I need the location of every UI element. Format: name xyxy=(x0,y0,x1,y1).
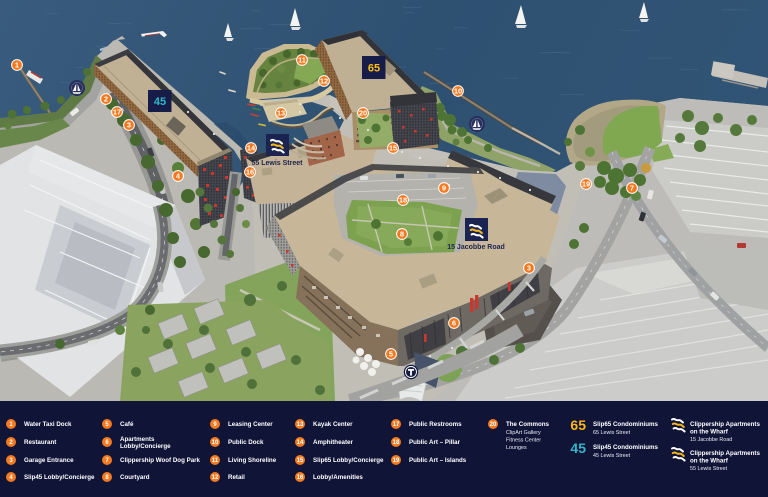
svg-text:15: 15 xyxy=(297,458,304,464)
svg-text:on the Wharf: on the Wharf xyxy=(690,458,729,465)
svg-text:65 Lewis Street: 65 Lewis Street xyxy=(593,430,631,436)
svg-text:Fitness Center: Fitness Center xyxy=(506,438,541,444)
svg-text:15: 15 xyxy=(389,144,397,153)
svg-text:3: 3 xyxy=(127,121,131,130)
svg-text:16: 16 xyxy=(297,475,304,481)
svg-text:15 Jacobbe Road: 15 Jacobbe Road xyxy=(690,437,732,443)
svg-text:Public Art – Islands: Public Art – Islands xyxy=(409,457,467,464)
svg-text:Clippership Apartments: Clippership Apartments xyxy=(690,421,760,428)
svg-text:6: 6 xyxy=(452,319,456,328)
svg-text:19: 19 xyxy=(582,180,590,189)
svg-text:The Commons: The Commons xyxy=(506,421,550,428)
svg-text:55 Lewis Street: 55 Lewis Street xyxy=(252,160,304,167)
svg-text:14: 14 xyxy=(297,440,304,446)
svg-text:10: 10 xyxy=(212,440,219,446)
svg-text:Water Taxi Dock: Water Taxi Dock xyxy=(24,421,72,428)
svg-text:Lounges: Lounges xyxy=(506,445,527,451)
svg-text:Amphitheater: Amphitheater xyxy=(313,439,353,446)
svg-text:65: 65 xyxy=(570,417,586,433)
svg-text:Restaurant: Restaurant xyxy=(24,439,56,446)
svg-text:14: 14 xyxy=(247,144,256,153)
svg-text:Garage Entrance: Garage Entrance xyxy=(24,457,74,464)
svg-text:Living Shoreline: Living Shoreline xyxy=(228,457,277,464)
svg-text:5: 5 xyxy=(389,350,393,359)
svg-text:18: 18 xyxy=(393,440,400,446)
svg-text:ClipArt Gallery: ClipArt Gallery xyxy=(506,430,541,436)
svg-text:Public Dock: Public Dock xyxy=(228,439,264,446)
svg-text:1: 1 xyxy=(15,61,19,70)
svg-text:9: 9 xyxy=(442,184,446,193)
svg-text:Leasing Center: Leasing Center xyxy=(228,421,273,428)
svg-text:18: 18 xyxy=(399,196,407,205)
svg-text:15 Jacobbe Road: 15 Jacobbe Road xyxy=(447,244,505,251)
svg-text:Slip65 Condominiums: Slip65 Condominiums xyxy=(593,421,659,428)
svg-text:12: 12 xyxy=(212,475,219,481)
svg-text:13: 13 xyxy=(277,109,285,118)
svg-text:16: 16 xyxy=(246,168,254,177)
svg-text:Kayak Center: Kayak Center xyxy=(313,421,353,428)
svg-text:3: 3 xyxy=(527,264,531,273)
svg-text:45: 45 xyxy=(570,440,586,456)
svg-text:Café: Café xyxy=(120,421,134,428)
svg-text:Public Art – Pillar: Public Art – Pillar xyxy=(409,439,461,446)
svg-text:11: 11 xyxy=(212,458,219,464)
svg-text:on the Wharf: on the Wharf xyxy=(690,429,729,436)
svg-text:12: 12 xyxy=(320,77,328,86)
svg-text:Slip45 Lobby/Concierge: Slip45 Lobby/Concierge xyxy=(24,474,95,481)
svg-text:Courtyard: Courtyard xyxy=(120,474,150,481)
svg-text:45 Lewis Street: 45 Lewis Street xyxy=(593,453,631,459)
svg-text:20: 20 xyxy=(490,422,497,428)
svg-text:Slip65 Lobby/Concierge: Slip65 Lobby/Concierge xyxy=(313,457,384,464)
svg-text:Public Restrooms: Public Restrooms xyxy=(409,421,462,428)
svg-text:Slip45 Condominiums: Slip45 Condominiums xyxy=(593,444,659,451)
svg-text:20: 20 xyxy=(359,109,367,118)
svg-text:13: 13 xyxy=(297,422,304,428)
svg-text:Lobby/Amenities: Lobby/Amenities xyxy=(313,474,363,481)
svg-text:Apartments: Apartments xyxy=(120,436,155,443)
svg-text:65: 65 xyxy=(368,63,380,75)
svg-text:7: 7 xyxy=(630,184,634,193)
svg-text:8: 8 xyxy=(400,230,404,239)
svg-text:10: 10 xyxy=(454,87,462,96)
svg-text:45: 45 xyxy=(154,96,166,108)
svg-text:19: 19 xyxy=(393,458,400,464)
svg-text:Lobby/Concierge: Lobby/Concierge xyxy=(120,443,171,450)
svg-text:Retail: Retail xyxy=(228,474,245,481)
svg-text:11: 11 xyxy=(298,56,306,65)
svg-text:55 Lewis Street: 55 Lewis Street xyxy=(690,466,728,472)
svg-text:2: 2 xyxy=(104,95,108,104)
svg-text:Clippership Woof Dog Park: Clippership Woof Dog Park xyxy=(120,457,201,464)
svg-text:17: 17 xyxy=(393,422,400,428)
svg-text:Clippership Apartments: Clippership Apartments xyxy=(690,450,760,457)
svg-text:17: 17 xyxy=(113,108,121,117)
